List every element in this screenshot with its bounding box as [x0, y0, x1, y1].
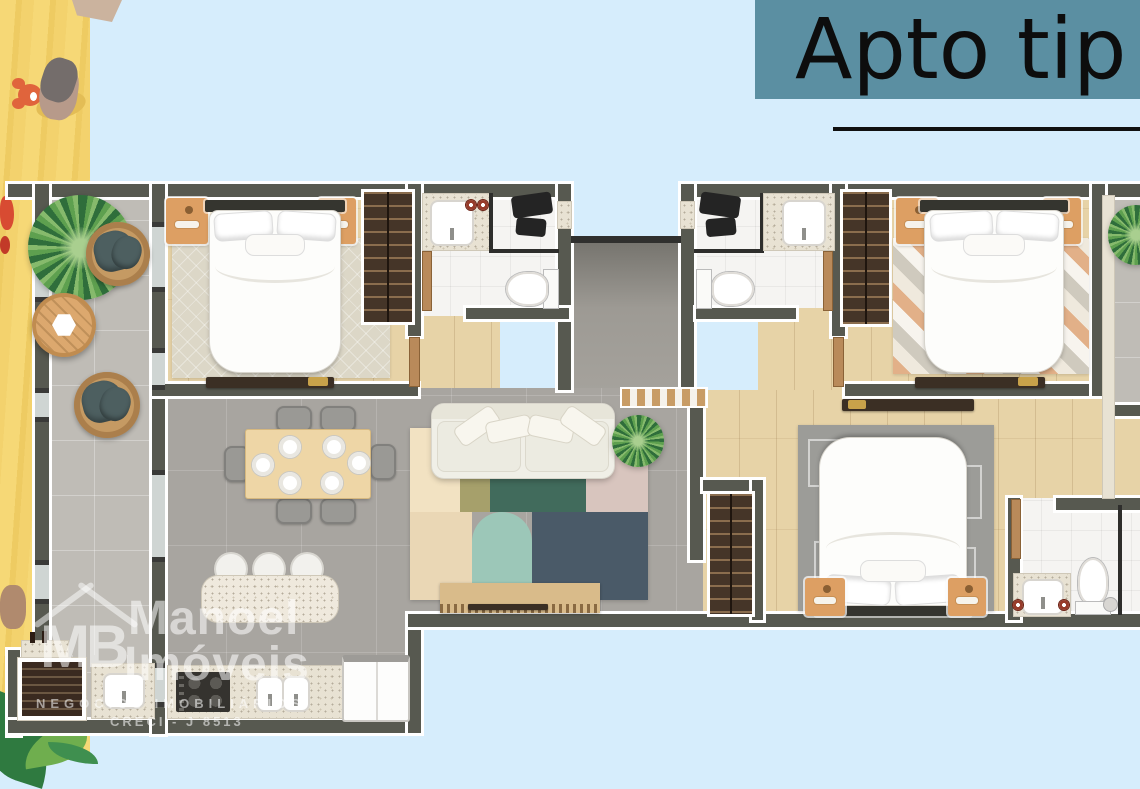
nightstand: [166, 198, 208, 244]
kitchen-sink: [282, 676, 310, 712]
door-leaf-bedroom1: [410, 338, 419, 386]
wardrobe: [710, 494, 752, 614]
spotlight: [1013, 600, 1023, 610]
plate: [279, 436, 301, 458]
shower-glass: [694, 249, 764, 253]
boat-shape: [72, 0, 122, 22]
shower-glass: [489, 249, 559, 253]
slat-divider: [622, 389, 706, 406]
plate: [323, 436, 345, 458]
pillow: [246, 235, 303, 255]
door-leaf-bath3: [1012, 500, 1020, 558]
coral-icon: [0, 236, 10, 254]
wall-bath3-top: [1056, 498, 1140, 510]
door-leaf-bath1: [423, 252, 431, 310]
title-underline: [833, 127, 1140, 131]
bath3-sink: [1022, 579, 1064, 615]
wall-bath1-bottom: [466, 308, 569, 319]
dining-chair: [370, 444, 396, 480]
spotlight: [1059, 600, 1069, 610]
sideboard-item: [848, 400, 866, 409]
bottle: [30, 632, 35, 643]
refrigerator: [342, 655, 410, 722]
title-banner: Apto tip: [755, 0, 1140, 99]
waste-bin: [1104, 598, 1117, 611]
shower-arm-icon: [515, 217, 546, 238]
gourmet-sink: [103, 673, 145, 709]
window-left-2: [35, 388, 49, 422]
shower-arm-icon: [705, 217, 736, 238]
shower-glass: [1118, 505, 1122, 615]
hall2-floor: [758, 308, 838, 390]
rattan-chair: [86, 222, 150, 286]
plate: [252, 454, 274, 476]
double-bed: [925, 200, 1063, 372]
plate: [321, 472, 343, 494]
wall-living-bedroom3: [690, 390, 703, 560]
nightstand: [805, 578, 845, 616]
dining-chair: [276, 498, 312, 524]
dining-chair: [276, 406, 312, 432]
wall-top-right: [681, 184, 1140, 197]
entry-vestibule-floor: [571, 240, 681, 392]
toilet-bowl: [1078, 558, 1108, 604]
entry-sill-left: [558, 202, 571, 228]
spotlight: [466, 200, 476, 210]
kitchen-sink: [256, 676, 284, 712]
cooktop: [176, 672, 230, 712]
sideboard-item: [1018, 377, 1038, 386]
coral-icon: [0, 196, 14, 230]
pillow: [861, 561, 925, 581]
entry-door: [571, 236, 681, 243]
door-leaf-bedroom2: [834, 338, 843, 386]
barbecue-grill: [22, 662, 82, 716]
toilet-bowl: [506, 272, 548, 306]
toilet-tank: [697, 270, 711, 308]
crab-eye: [30, 92, 37, 101]
dining-chair: [320, 406, 356, 432]
door-balcony-dining: [152, 470, 165, 562]
double-bed: [210, 200, 340, 372]
pillow: [964, 235, 1025, 255]
door-leaf-bath2: [824, 252, 832, 310]
sofa: [432, 404, 614, 478]
spotlight: [478, 200, 488, 210]
wall-bath2-bottom: [696, 308, 796, 319]
entry-sill-right: [681, 202, 694, 228]
toilet-bowl: [712, 272, 754, 306]
bath2-sink: [782, 200, 826, 246]
shower-glass: [489, 193, 493, 253]
door-balcony-bedroom1: [152, 348, 165, 390]
nightstand: [948, 578, 986, 616]
rattan-chair: [74, 372, 140, 438]
rock-shape: [0, 585, 26, 629]
round-coffee-table: [32, 293, 96, 357]
plate: [348, 452, 370, 474]
wardrobe: [843, 192, 889, 324]
window-left-3: [35, 560, 49, 604]
television: [468, 604, 548, 610]
hall1-floor: [418, 308, 500, 390]
kitchen-island: [202, 576, 338, 622]
page-title: Apto tip: [755, 0, 1140, 99]
wall-closet-right: [752, 480, 763, 620]
plate: [279, 472, 301, 494]
plant-icon: [612, 415, 664, 467]
wardrobe: [364, 192, 412, 322]
bottle: [42, 631, 47, 643]
dining-chair: [320, 498, 356, 524]
window-balcony-bedroom1: [152, 222, 165, 292]
sideboard-item: [308, 377, 328, 386]
grill-counter: [22, 641, 68, 658]
table-center: [52, 313, 76, 337]
